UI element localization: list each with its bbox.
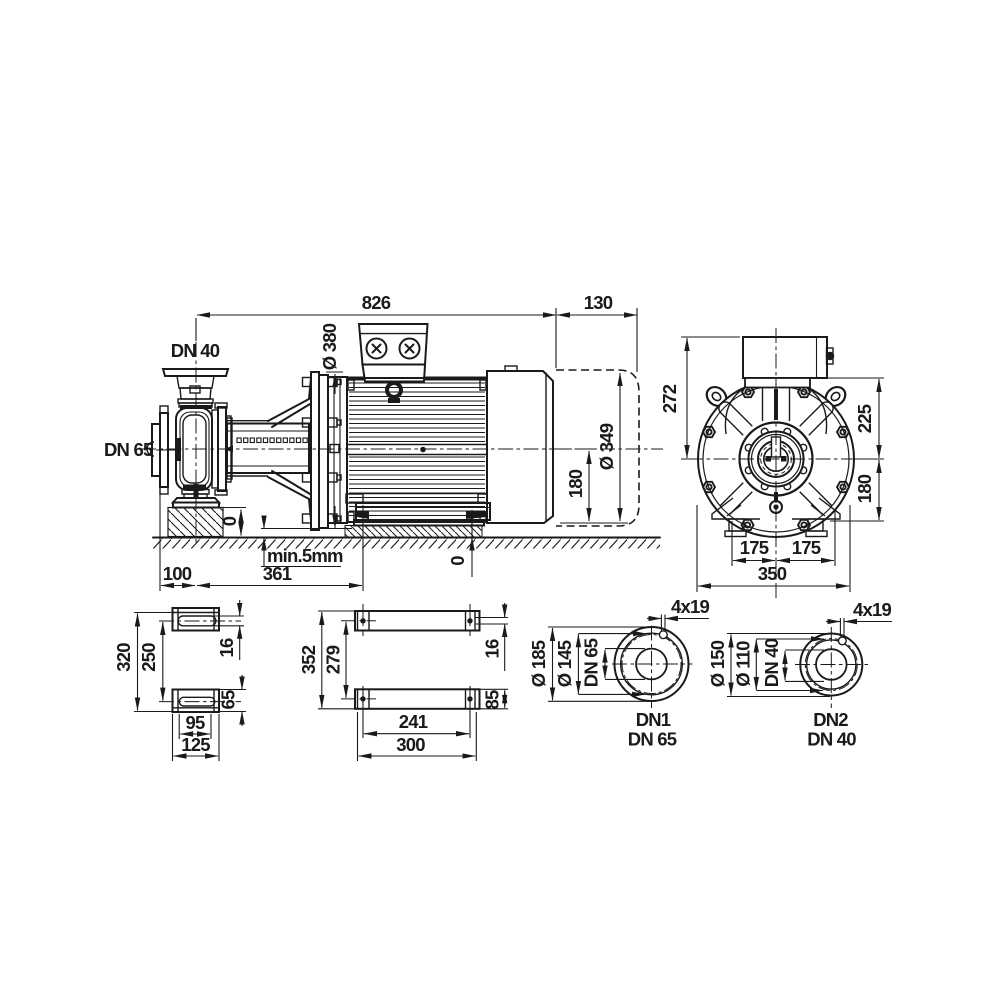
svg-text:Ø 110: Ø 110 — [732, 641, 753, 687]
svg-text:DN2: DN2 — [813, 709, 848, 730]
svg-text:DN 40: DN 40 — [761, 638, 782, 687]
svg-text:175: 175 — [792, 537, 821, 558]
svg-text:320: 320 — [113, 643, 134, 672]
svg-text:16: 16 — [481, 639, 502, 658]
svg-text:300: 300 — [396, 734, 425, 755]
svg-text:350: 350 — [758, 563, 787, 584]
svg-text:4x19: 4x19 — [853, 599, 891, 620]
svg-text:Ø 349: Ø 349 — [596, 423, 617, 470]
svg-text:130: 130 — [584, 292, 613, 313]
svg-text:826: 826 — [362, 292, 391, 313]
svg-text:DN 65: DN 65 — [628, 729, 677, 750]
svg-text:Ø 150: Ø 150 — [707, 640, 728, 687]
svg-text:65: 65 — [217, 690, 238, 709]
svg-text:125: 125 — [181, 734, 210, 755]
svg-text:4x19: 4x19 — [671, 596, 709, 617]
svg-text:225: 225 — [854, 404, 875, 433]
svg-text:180: 180 — [565, 469, 586, 498]
svg-text:352: 352 — [298, 645, 319, 674]
svg-text:DN 65: DN 65 — [580, 638, 601, 687]
svg-text:250: 250 — [138, 643, 159, 672]
svg-text:Ø 380: Ø 380 — [319, 323, 340, 370]
svg-text:95: 95 — [186, 712, 205, 733]
svg-text:16: 16 — [216, 638, 237, 657]
svg-text:241: 241 — [399, 711, 428, 732]
svg-text:Ø 145: Ø 145 — [554, 640, 575, 687]
svg-text:DN 40: DN 40 — [171, 340, 220, 361]
svg-text:Ø 185: Ø 185 — [528, 640, 549, 687]
svg-text:180: 180 — [854, 474, 875, 503]
svg-text:100: 100 — [163, 563, 192, 584]
svg-text:175: 175 — [740, 537, 769, 558]
svg-text:0: 0 — [219, 516, 240, 526]
svg-text:DN1: DN1 — [636, 709, 671, 730]
svg-text:DN 65: DN 65 — [104, 439, 153, 460]
svg-text:0: 0 — [447, 556, 468, 566]
svg-text:85: 85 — [481, 690, 502, 709]
svg-text:279: 279 — [322, 645, 343, 674]
svg-text:DN 40: DN 40 — [807, 729, 856, 750]
svg-text:361: 361 — [263, 563, 292, 584]
svg-text:272: 272 — [659, 384, 680, 413]
